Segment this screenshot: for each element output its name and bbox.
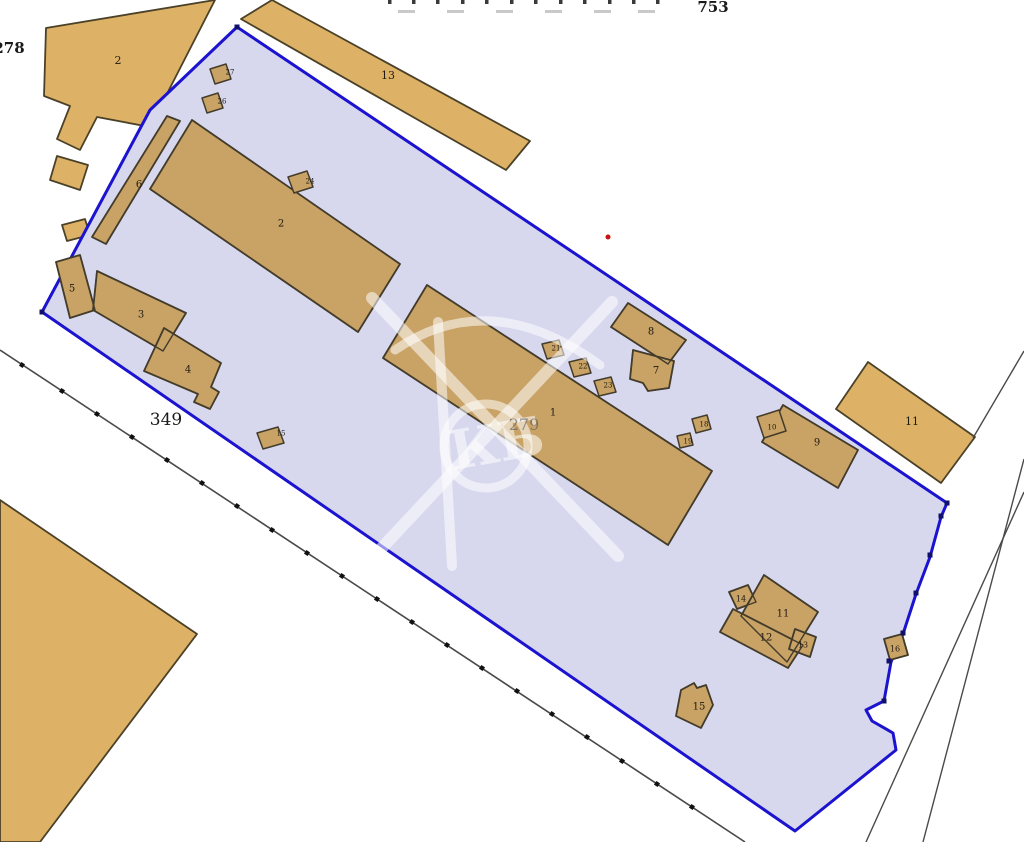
annex-label-19: 19 <box>684 438 693 446</box>
annex-label-23: 23 <box>604 382 613 390</box>
building-label-11: 11 <box>777 609 790 620</box>
annex-label-27: 27 <box>226 69 235 77</box>
parcel-vertex-dot <box>887 659 892 664</box>
annex-label-21: 21 <box>552 345 561 353</box>
building-label-6: 6 <box>136 180 142 191</box>
map-number-753: 753 <box>697 0 728 16</box>
parcel-vertex-dot <box>939 514 944 519</box>
cadastral-map[interactable]: КБ27921311265341879141112131615272624212… <box>0 0 1024 842</box>
building-label-13: 13 <box>798 641 808 650</box>
building-label-9: 9 <box>814 438 820 449</box>
map-number-278: 278 <box>0 39 25 57</box>
top-clipped-text-fragment-light <box>496 10 513 13</box>
annex-label-22: 22 <box>579 363 588 371</box>
parcel-vertex-dot <box>945 501 950 506</box>
top-clipped-text-fragment <box>583 0 587 4</box>
top-clipped-text-fragment-light <box>398 10 415 13</box>
building-label-2: 2 <box>115 54 122 67</box>
map-number-349: 349 <box>150 410 182 430</box>
annex-label-10: 10 <box>768 424 777 432</box>
top-clipped-text-fragment <box>436 0 440 4</box>
parcel-vertex-dot <box>882 699 887 704</box>
top-clipped-text-fragment <box>559 0 563 4</box>
top-clipped-text-fragment <box>485 0 489 4</box>
parcel-vertex-dot <box>928 553 933 558</box>
parcel-vertex-dot <box>901 631 906 636</box>
building-label-4: 4 <box>185 365 191 376</box>
building-label-14: 14 <box>736 595 746 604</box>
building-label-2: 2 <box>278 219 284 230</box>
building-label-12: 12 <box>760 633 773 644</box>
top-clipped-text-fragment <box>632 0 636 4</box>
building-label-1: 1 <box>550 408 556 419</box>
annex-label-24: 24 <box>306 178 315 186</box>
top-clipped-text-fragment <box>461 0 465 4</box>
building-label-16: 16 <box>890 645 900 654</box>
top-clipped-text-fragment <box>608 0 612 4</box>
red-survey-point <box>606 235 611 240</box>
parcel-vertex-dot <box>235 25 240 30</box>
parcel-vertex-dot <box>40 310 45 315</box>
building-label-8: 8 <box>648 327 654 338</box>
map-viewport: КБ27921311265341879141112131615272624212… <box>0 0 1024 842</box>
building-label-3: 3 <box>138 310 144 321</box>
top-clipped-text-fragment <box>388 0 392 4</box>
top-clipped-text-fragment-light <box>447 10 464 13</box>
top-clipped-text-fragment-light <box>545 10 562 13</box>
top-clipped-text-fragment <box>510 0 514 4</box>
building-label-13: 13 <box>381 69 395 82</box>
building-label-11: 11 <box>905 415 919 428</box>
building-label-5: 5 <box>69 284 75 295</box>
building-label-15: 15 <box>693 702 706 713</box>
annex-label-18: 18 <box>700 421 709 429</box>
building-label-7: 7 <box>653 366 659 377</box>
top-clipped-text-fragment <box>412 0 416 4</box>
top-clipped-text-fragment-light <box>594 10 611 13</box>
annex-label-26: 26 <box>218 98 227 106</box>
top-clipped-text-fragment-light <box>638 10 655 13</box>
parcel-vertex-dot <box>914 591 919 596</box>
annex-label-15: 15 <box>277 430 286 438</box>
parcel-number-faint: 279 <box>509 415 540 434</box>
top-clipped-text-fragment <box>656 0 660 4</box>
top-clipped-text-fragment <box>534 0 538 4</box>
